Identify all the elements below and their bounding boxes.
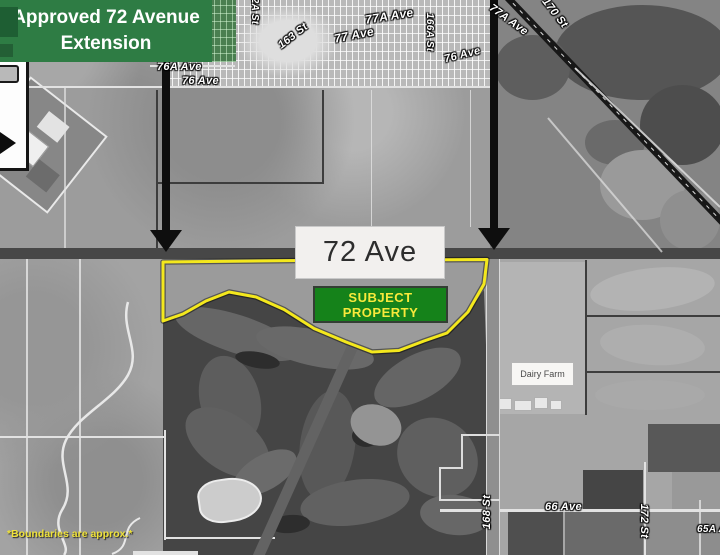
road-label-72ave: 72 Ave	[323, 236, 417, 269]
legend-swatch	[0, 65, 19, 83]
creek-line	[58, 302, 132, 555]
street-label-66-ave: 66 Ave	[545, 501, 582, 513]
boundaries-disclaimer: *Boundaries are approx.*	[7, 528, 132, 540]
dairy-farm-label-box: Dairy Farm	[511, 362, 574, 386]
street-label-162a-st: 162A St	[249, 0, 260, 24]
green-map-fragment	[0, 44, 13, 57]
street-label-172-st: 172 St	[638, 504, 650, 538]
street-label-166a-st: 166A St	[424, 13, 435, 51]
aerial-map: 76A Ave 76 Ave 162A St 163 St 77A Ave 77…	[0, 0, 720, 555]
stepped-property-line	[440, 435, 500, 500]
fraser-hwy-road	[506, 0, 720, 226]
subject-property-line1: SUBJECT	[348, 290, 412, 305]
arrow-right-stem	[490, 0, 498, 228]
diagonal-boundary-line	[575, 68, 720, 207]
utility-corridor	[258, 348, 352, 555]
legend-inset-panel	[0, 62, 29, 171]
title-banner-text: Approved 72 Avenue Extension	[6, 5, 206, 57]
arrow-right-head	[478, 228, 510, 250]
road-label-box-72ave: 72 Ave	[296, 227, 444, 278]
street-label-76-ave: 76 Ave	[182, 75, 219, 87]
street-label-65a-ave: 65A Ave	[697, 524, 720, 535]
legend-arrow-icon	[0, 132, 16, 154]
street-label-76a-ave: 76A Ave	[157, 61, 202, 73]
subject-property-line2: PROPERTY	[343, 305, 419, 320]
subject-property-badge: SUBJECT PROPERTY	[313, 286, 448, 323]
green-map-fragment	[0, 7, 18, 37]
title-banner: Approved 72 Avenue Extension	[0, 0, 212, 62]
dairy-farm-label: Dairy Farm	[520, 369, 565, 379]
street-label-168-st: 168 St	[481, 495, 493, 529]
arrow-left-head	[150, 230, 182, 252]
